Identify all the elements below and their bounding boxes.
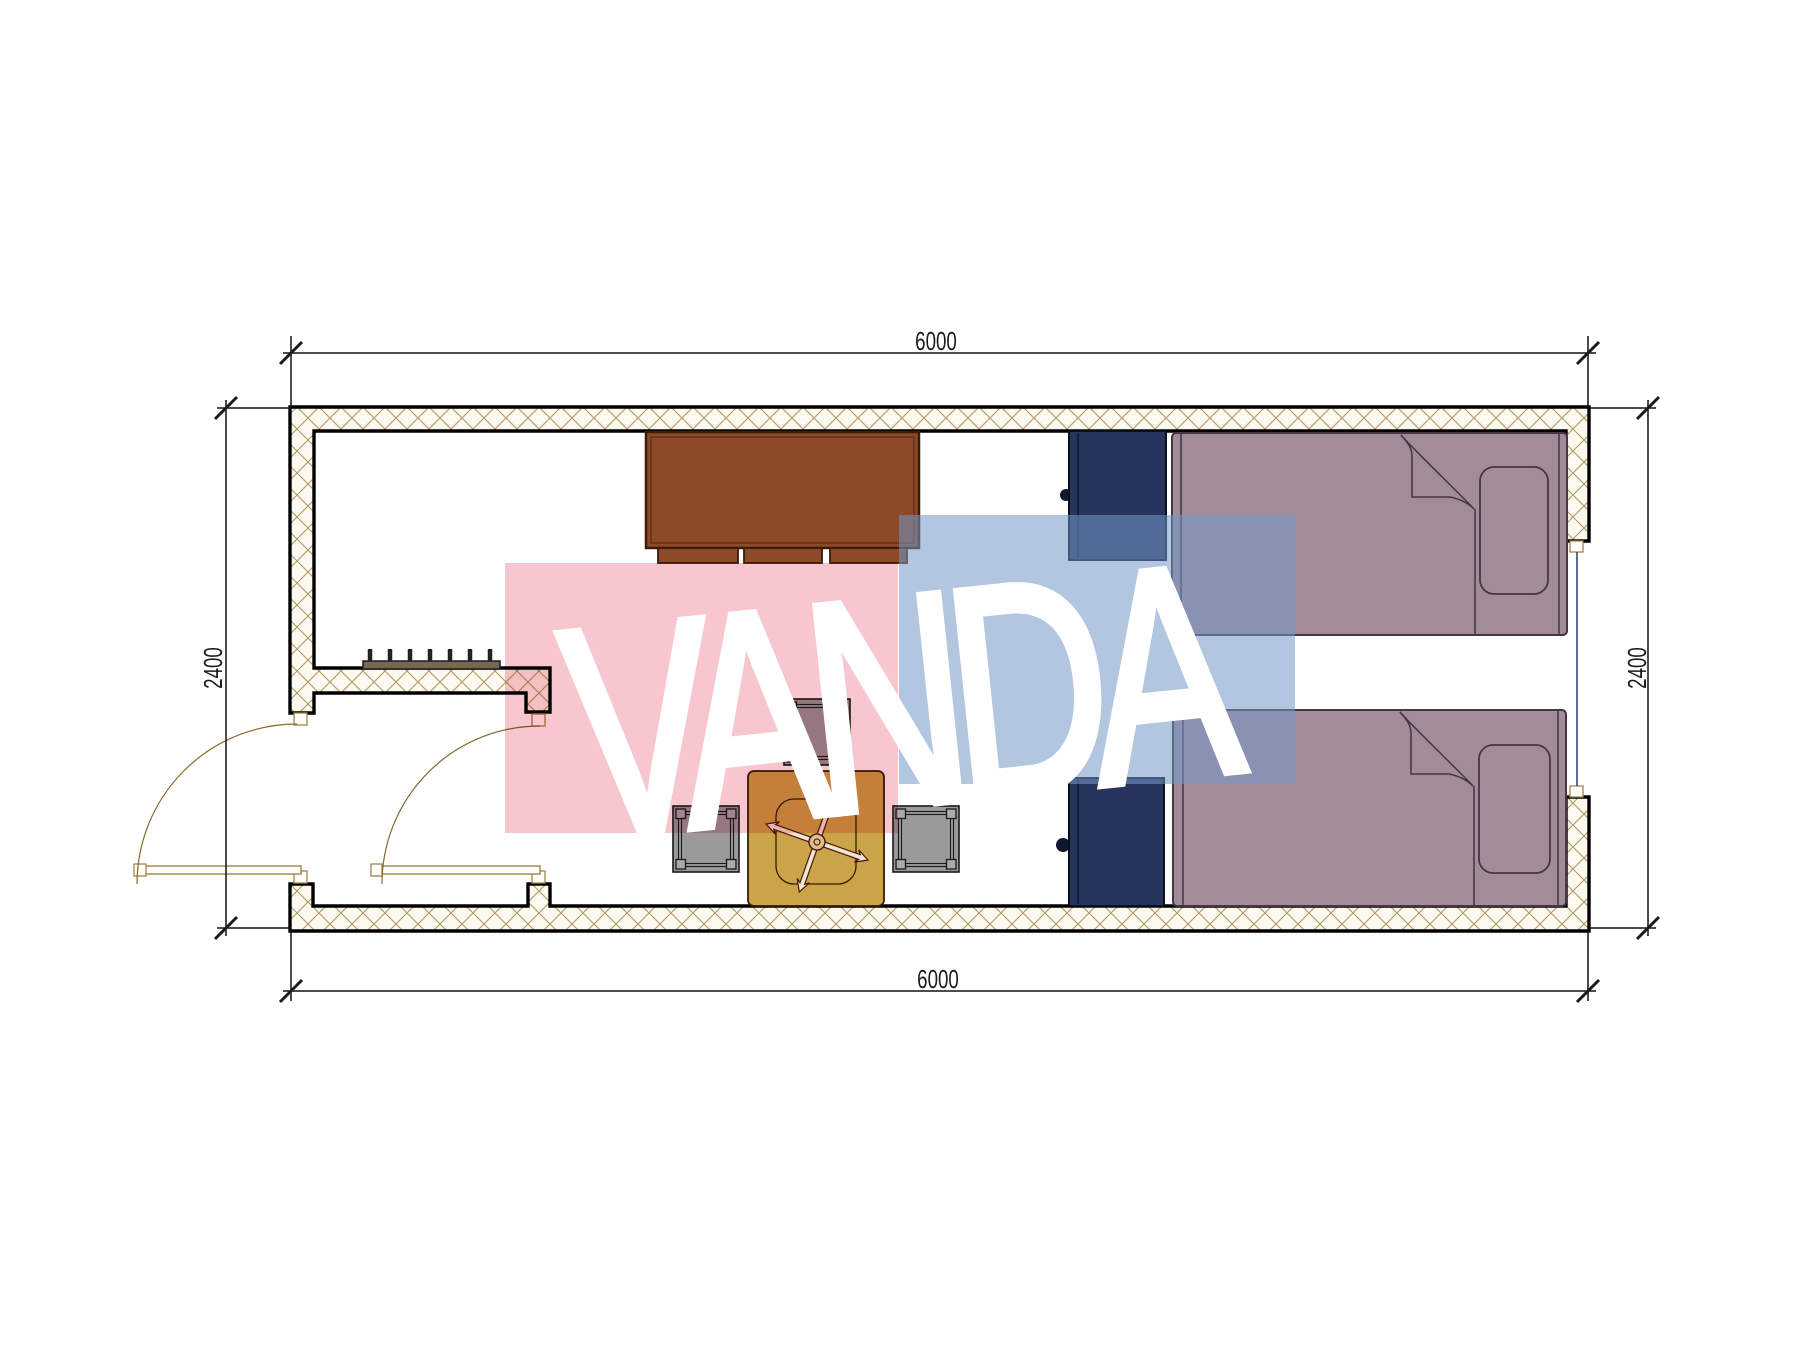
svg-text:6000: 6000 xyxy=(915,326,957,356)
svg-text:2400: 2400 xyxy=(1622,647,1652,689)
svg-text:2400: 2400 xyxy=(198,647,228,689)
svg-text:6000: 6000 xyxy=(917,964,959,994)
